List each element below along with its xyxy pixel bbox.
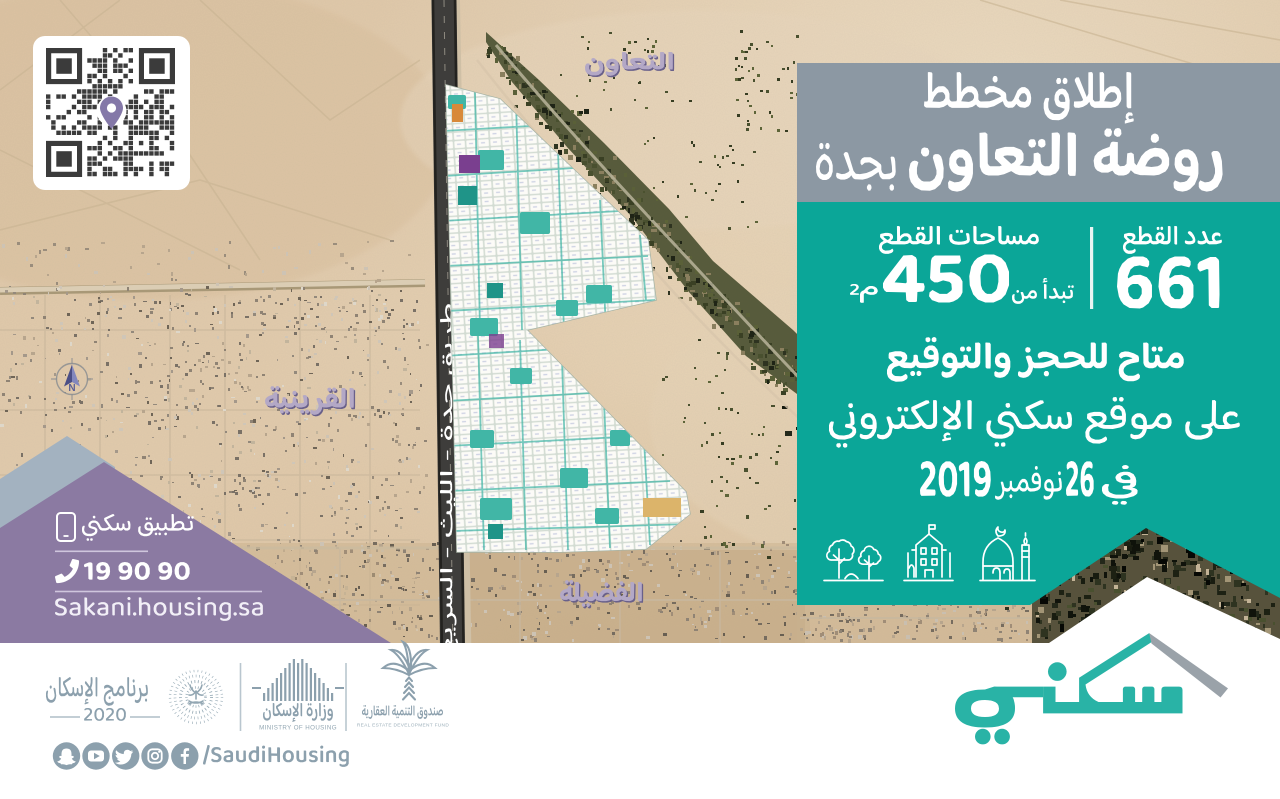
svg-text:REAL ESTATE DEVELOPMENT FUND: REAL ESTATE DEVELOPMENT FUND [357,723,449,729]
svg-text:N: N [68,383,75,394]
svg-text:MINISTRY OF HOUSING: MINISTRY OF HOUSING [259,725,337,732]
